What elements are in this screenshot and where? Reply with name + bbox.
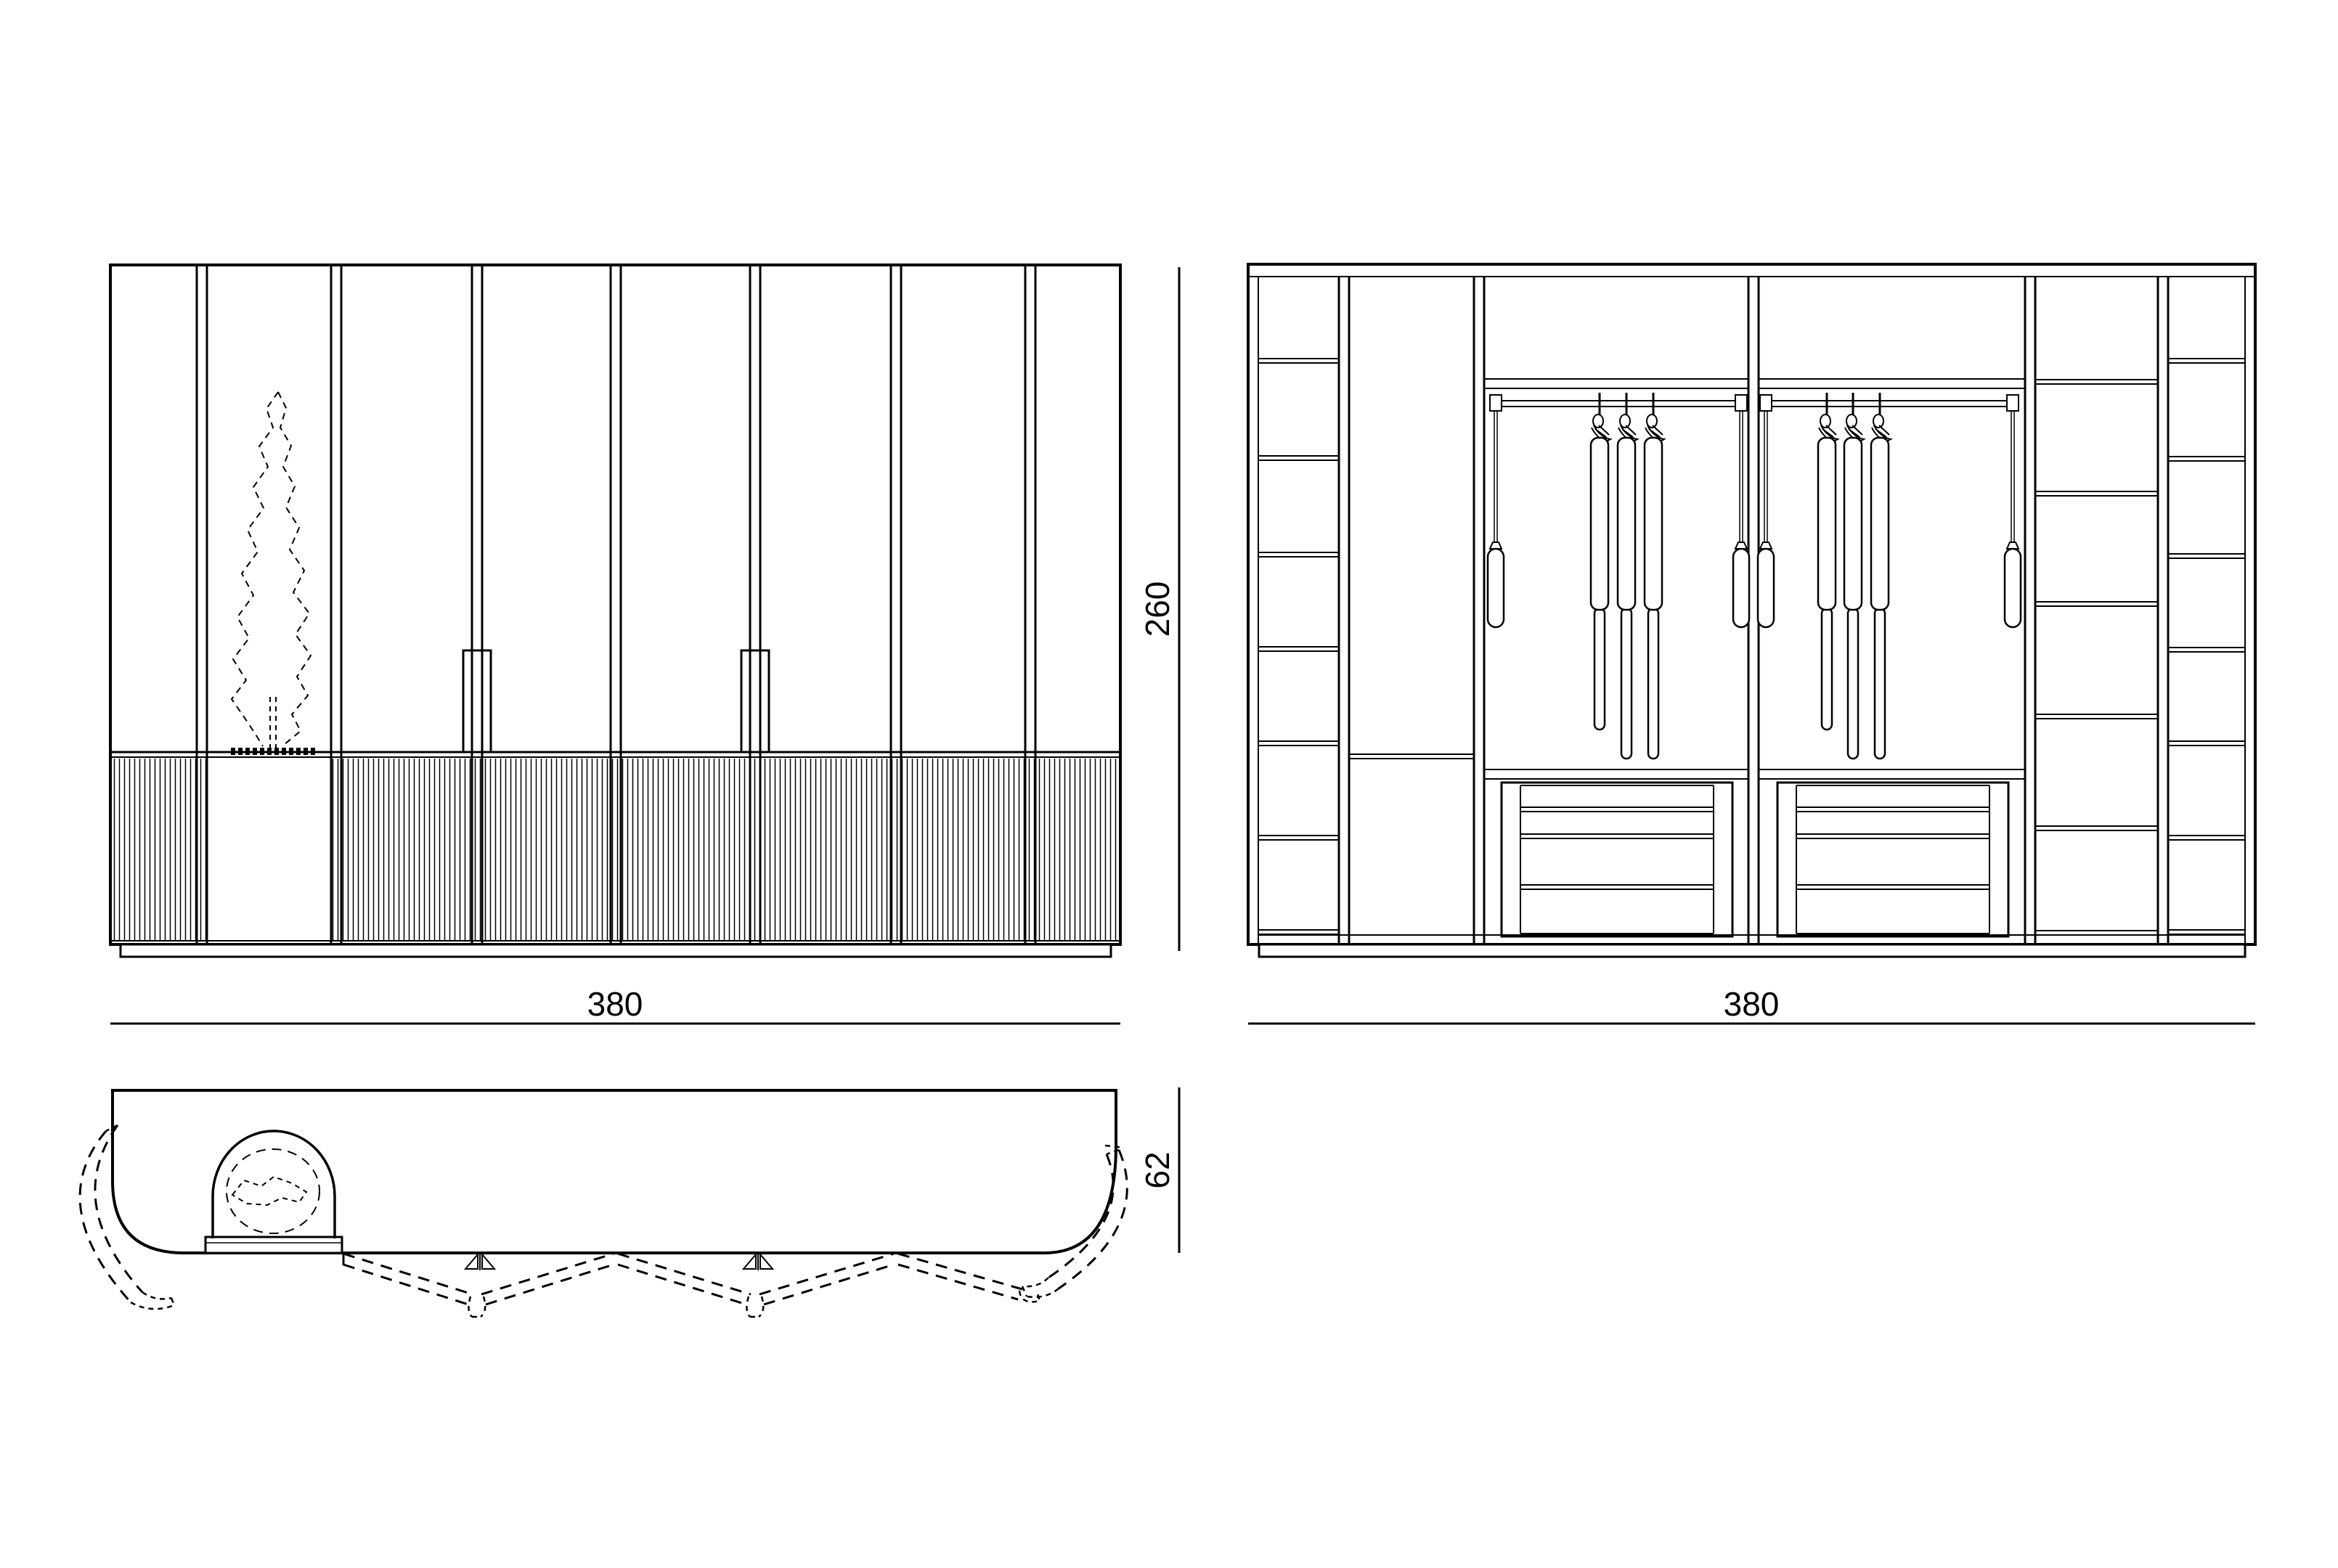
interior-plinth (1259, 944, 2245, 957)
clothes-hanger (1591, 393, 1610, 610)
shelf-column-left (1258, 359, 1339, 934)
bay1-header-shelf (1484, 379, 1748, 388)
planter-arch (213, 1131, 335, 1238)
drawer-stack (1777, 783, 2008, 936)
plan-view (80, 1090, 1127, 1317)
tall-cabinet-column (1349, 754, 1474, 759)
door-edge-foot (468, 1297, 485, 1317)
bay2-clothes-rail (1772, 401, 2007, 407)
bay1-drawer-shelf (1484, 769, 1748, 779)
door-handle-left (463, 650, 491, 752)
clothes-hanger (1871, 393, 1891, 610)
plant-silhouette (231, 392, 315, 755)
wardrobe-technical-drawing: 380 380 260 62 (0, 0, 2338, 1568)
planter-pedestal (205, 1237, 342, 1253)
width-dimension-interior: 380 (1248, 985, 2255, 1024)
bay2-drawer-shelf (1759, 769, 2025, 779)
garment-strip (1848, 608, 1858, 759)
dimension-label: 62 (1139, 1151, 1176, 1188)
pull-down-handle (2005, 411, 2021, 627)
plan-outline (113, 1090, 1116, 1253)
dimension-label: 260 (1139, 581, 1176, 637)
shelf-column-right (2168, 359, 2245, 934)
front-plinth (121, 944, 1111, 957)
hanging-bay-2 (1758, 379, 2025, 936)
interior-elevation-view (1248, 264, 2255, 957)
shelf-column-wide (2035, 380, 2158, 935)
pull-down-handle (1488, 411, 1504, 627)
width-dimension-front: 380 (110, 985, 1120, 1024)
dimension-label: 380 (587, 985, 643, 1023)
bay1-clothes-rail (1502, 401, 1735, 407)
bay2-header-shelf (1759, 379, 2025, 388)
rail-bracket (2007, 395, 2019, 411)
clothes-hanger (1618, 393, 1637, 610)
garment-strip (1648, 608, 1658, 759)
plant-core-dashed (232, 1177, 306, 1205)
rail-bracket (1760, 395, 1772, 411)
drawer-stack (1502, 783, 1732, 936)
partitions (1339, 277, 2168, 944)
rail-bracket (1490, 395, 1502, 411)
end-door-swing-left (80, 1125, 174, 1309)
clothes-hanger (1645, 393, 1664, 610)
dimension-label: 380 (1724, 985, 1780, 1023)
pull-down-handle (1733, 411, 1749, 627)
clothes-hanger (1818, 393, 1838, 610)
plan-planter (205, 1131, 342, 1253)
pull-down-handle (1758, 411, 1774, 627)
rail-bracket (1735, 395, 1747, 411)
end-door-swing-right (1022, 1146, 1127, 1297)
depth-dimension: 62 (1139, 1087, 1179, 1253)
height-dimension: 260 (1139, 267, 1179, 951)
open-door-swings (343, 1254, 1040, 1317)
door-handle-right (741, 650, 769, 752)
door-pivot-symbol (465, 1253, 494, 1270)
garment-strip (1875, 608, 1885, 759)
garment-strip (1822, 608, 1832, 730)
front-elevation-view (110, 265, 1120, 957)
door-pivot-symbol (744, 1253, 773, 1270)
clothes-hanger (1844, 393, 1864, 610)
planter-bay (208, 758, 331, 942)
door-edge-foot (746, 1297, 763, 1317)
slatted-base (110, 752, 1120, 942)
interior-carcass-outline (1248, 264, 2255, 944)
garment-strip (1594, 608, 1605, 730)
hanging-bay-1 (1484, 379, 1749, 936)
garment-strip (1621, 608, 1632, 759)
